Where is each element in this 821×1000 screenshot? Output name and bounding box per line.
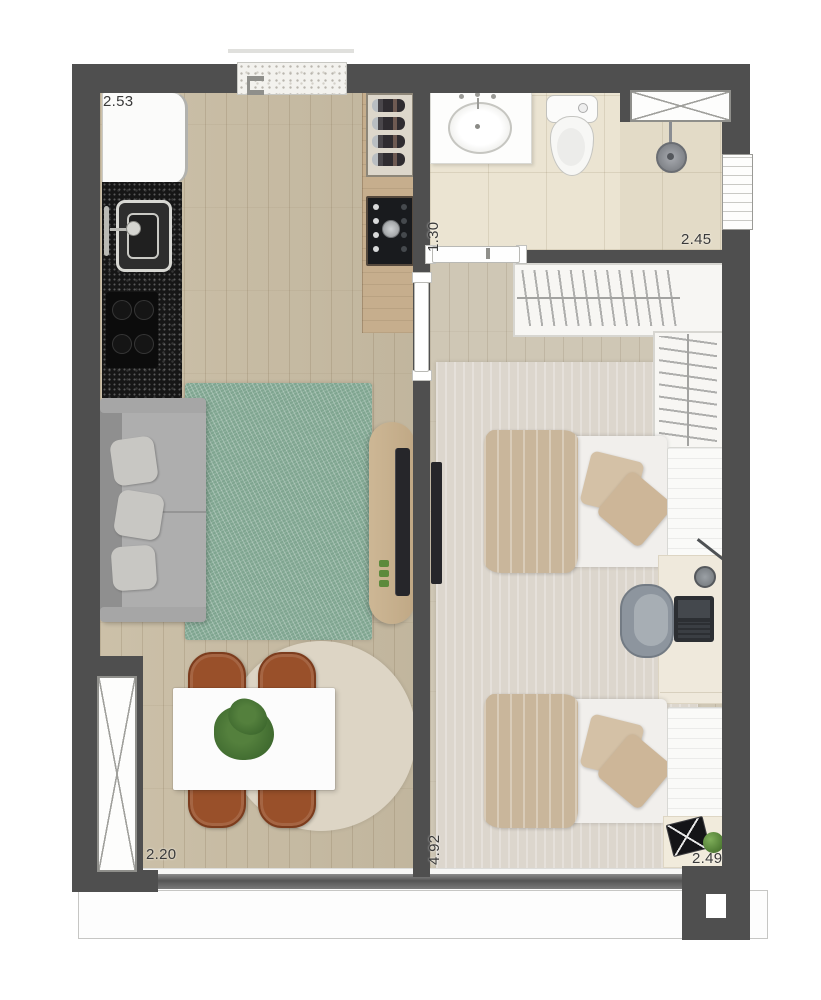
wall-bottom-left <box>72 870 158 892</box>
burner <box>112 300 132 320</box>
desk-chair-seat <box>634 594 668 646</box>
dimension-label-kitchen: 2.53 <box>103 94 133 109</box>
pillar-window <box>706 894 726 918</box>
wine-bottle <box>372 135 405 148</box>
sink-drain <box>475 124 480 129</box>
dimension-label-bedroom-length: 4.92 <box>427 835 442 865</box>
wine-rack <box>366 93 414 177</box>
bed-2-blanket <box>484 694 578 828</box>
tv <box>395 448 410 596</box>
bathroom-window <box>630 90 731 122</box>
sofa-pillow <box>111 545 158 592</box>
wine-bottle <box>372 99 405 112</box>
kitchen-sink <box>116 200 172 272</box>
toilet-flush-button <box>578 103 588 113</box>
balcony-floor <box>78 890 768 939</box>
sofa-pillow <box>109 435 159 487</box>
kitchen-faucet-lever <box>104 206 109 256</box>
shower-head-center <box>667 153 674 160</box>
sink-faucet <box>477 98 479 109</box>
closet-rod <box>517 297 680 299</box>
oven-knob <box>401 232 407 238</box>
living-room-rug <box>185 383 372 640</box>
burner <box>134 334 154 354</box>
oven-knob <box>373 204 379 210</box>
living-room-window <box>97 676 137 872</box>
console-decor <box>379 560 389 567</box>
bedroom-tv <box>431 462 442 584</box>
oven-dial <box>382 220 400 238</box>
toilet-bowl <box>557 128 585 166</box>
dimension-label-bedroom-width: 2.49 <box>692 851 722 866</box>
shower-window <box>722 154 753 230</box>
bedroom-door <box>414 282 429 372</box>
desk-seam <box>660 692 722 693</box>
floor-plan: 2.53 1.30 2.45 2.20 4.92 2.49 <box>0 0 821 1000</box>
laptop-screen <box>678 600 710 618</box>
closet-rod <box>687 334 689 446</box>
oven-knob <box>373 232 379 238</box>
sofa-armrest <box>100 398 206 413</box>
desk-lamp <box>694 566 716 588</box>
sofa-armrest <box>100 607 206 622</box>
oven-knob <box>373 218 379 224</box>
entry-door-handle <box>248 90 264 95</box>
oven-knob <box>401 218 407 224</box>
kitchen-faucet <box>126 221 141 236</box>
console-decor <box>379 570 389 577</box>
bed-1-blanket <box>484 430 578 573</box>
burner <box>112 334 132 354</box>
sofa-pillow <box>113 489 166 542</box>
dimension-label-bathroom: 2.45 <box>681 232 711 247</box>
dimension-label-bath-corridor: 1.30 <box>426 222 441 252</box>
bathroom-door <box>432 246 520 263</box>
wine-bottle <box>372 153 405 166</box>
entry-door-handle <box>247 76 250 95</box>
corridor-wall-line <box>228 49 354 53</box>
kitchen-sink-basin <box>127 213 159 259</box>
faucet-dot <box>459 94 464 99</box>
faucet-dot <box>491 94 496 99</box>
oven-knob <box>401 204 407 210</box>
oven-knob <box>373 246 379 252</box>
bed-2-headboard <box>667 707 724 819</box>
bathroom-sink <box>448 102 512 154</box>
oven-knob <box>401 246 407 252</box>
dimension-label-living: 2.20 <box>146 847 176 862</box>
wine-bottle <box>372 117 405 130</box>
laptop-keyboard <box>678 622 710 638</box>
entry-door-handle <box>248 76 264 81</box>
burner <box>134 300 154 320</box>
oven-panel <box>366 196 414 266</box>
wall-living-bedroom-divider <box>413 64 430 877</box>
cooktop <box>106 292 158 368</box>
console-decor <box>379 580 389 587</box>
bed-1-headboard <box>667 447 724 559</box>
bathroom-door-handle <box>486 248 490 259</box>
